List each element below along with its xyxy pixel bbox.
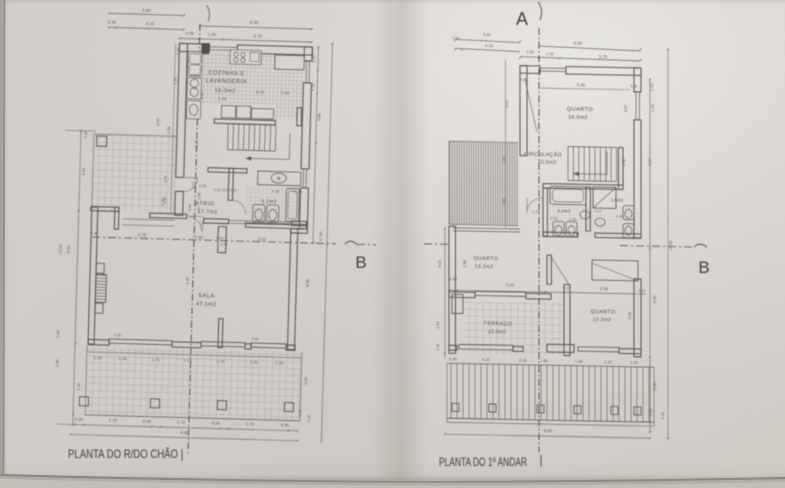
svg-text:1.75: 1.75 xyxy=(217,359,225,364)
svg-text:0.35: 0.35 xyxy=(519,359,527,363)
svg-text:0.55: 0.55 xyxy=(220,243,227,247)
svg-text:6.15: 6.15 xyxy=(200,223,204,230)
svg-text:3.02: 3.02 xyxy=(200,92,204,99)
svg-text:1.57: 1.57 xyxy=(191,181,195,188)
svg-text:3.68: 3.68 xyxy=(502,199,506,206)
svg-text:0.30: 0.30 xyxy=(639,289,646,293)
svg-text:4.03: 4.03 xyxy=(437,260,442,268)
svg-text:0.75: 0.75 xyxy=(256,90,265,95)
svg-text:1.45: 1.45 xyxy=(281,90,290,95)
svg-text:3.80: 3.80 xyxy=(142,8,151,13)
svg-text:3.58: 3.58 xyxy=(167,126,171,133)
svg-text:12.50: 12.50 xyxy=(58,243,63,254)
svg-text:2.20: 2.20 xyxy=(195,140,199,147)
svg-text:3.50: 3.50 xyxy=(483,32,492,37)
svg-text:3.15: 3.15 xyxy=(485,43,493,48)
svg-text:2.40: 2.40 xyxy=(55,329,60,338)
svg-text:5.40: 5.40 xyxy=(185,276,190,285)
svg-text:1.45: 1.45 xyxy=(575,360,583,364)
svg-text:5.50: 5.50 xyxy=(506,282,515,287)
svg-text:1.20: 1.20 xyxy=(94,355,103,360)
svg-text:B: B xyxy=(355,253,366,272)
svg-text:0.30: 0.30 xyxy=(77,383,81,390)
svg-text:3.14: 3.14 xyxy=(81,167,86,176)
svg-text:4.02: 4.02 xyxy=(504,101,509,109)
svg-text:0.90: 0.90 xyxy=(252,337,259,341)
svg-text:8.00: 8.00 xyxy=(156,118,160,125)
svg-text:0.30: 0.30 xyxy=(55,360,59,367)
svg-text:1.05: 1.05 xyxy=(186,31,194,36)
svg-text:0.15: 0.15 xyxy=(197,206,201,213)
svg-text:ATRIO: ATRIO xyxy=(195,201,214,208)
svg-text:2.40: 2.40 xyxy=(653,382,657,389)
svg-text:1.90: 1.90 xyxy=(195,235,203,239)
svg-text:0.30: 0.30 xyxy=(631,84,638,88)
svg-text:0.15: 0.15 xyxy=(551,216,558,220)
svg-text:0.30: 0.30 xyxy=(143,418,152,423)
svg-text:QUARTO: QUARTO xyxy=(567,107,593,114)
svg-text:SALA: SALA xyxy=(198,293,215,299)
svg-text:17.00: 17.00 xyxy=(668,240,673,251)
svg-text:1.80: 1.80 xyxy=(540,359,548,363)
svg-text:2.73: 2.73 xyxy=(109,418,117,423)
svg-text:3.00: 3.00 xyxy=(199,184,207,188)
svg-text:2.88: 2.88 xyxy=(463,260,467,267)
svg-text:0.30: 0.30 xyxy=(75,417,84,422)
svg-text:0.15 0.84 0.15: 0.15 0.84 0.15 xyxy=(214,188,237,193)
svg-text:5.2m2: 5.2m2 xyxy=(261,199,277,205)
svg-text:0.30: 0.30 xyxy=(295,190,302,194)
svg-text:0.10: 0.10 xyxy=(595,209,602,213)
svg-text:3.75: 3.75 xyxy=(599,54,608,59)
svg-text:QUARTO: QUARTO xyxy=(590,309,615,315)
svg-text:1.5m2: 1.5m2 xyxy=(611,197,624,202)
svg-text:0.30: 0.30 xyxy=(661,412,665,419)
svg-text:1.20: 1.20 xyxy=(119,356,128,361)
svg-text:10.5m2: 10.5m2 xyxy=(538,159,556,165)
svg-text:1.20: 1.20 xyxy=(546,52,554,56)
svg-text:1.20: 1.20 xyxy=(604,360,612,364)
svg-text:3.76: 3.76 xyxy=(138,232,147,237)
svg-text:PLANTA DO R/DO CHÃO: PLANTA DO R/DO CHÃO xyxy=(68,447,178,461)
svg-text:0.30: 0.30 xyxy=(84,131,88,138)
svg-text:1.20: 1.20 xyxy=(532,210,539,214)
svg-text:3.35: 3.35 xyxy=(600,286,609,291)
svg-text:3.98: 3.98 xyxy=(316,113,321,121)
svg-text:B: B xyxy=(698,258,709,277)
svg-text:16.2m2: 16.2m2 xyxy=(215,88,236,95)
svg-text:1.20: 1.20 xyxy=(502,157,506,164)
svg-text:1.23: 1.23 xyxy=(312,55,316,62)
svg-text:5.40: 5.40 xyxy=(577,82,586,87)
svg-text:3.75: 3.75 xyxy=(253,33,262,38)
svg-text:0.88: 0.88 xyxy=(197,192,201,199)
svg-text:0.30: 0.30 xyxy=(298,409,302,416)
svg-text:1.20: 1.20 xyxy=(184,358,193,363)
svg-text:2.40: 2.40 xyxy=(304,377,308,384)
svg-text:COZINHA E: COZINHA E xyxy=(208,70,245,77)
svg-text:6.39: 6.39 xyxy=(305,279,310,287)
svg-text:0.30: 0.30 xyxy=(307,415,311,422)
svg-text:0.30: 0.30 xyxy=(281,422,290,427)
svg-text:47.1m2: 47.1m2 xyxy=(196,301,217,308)
svg-text:2.73: 2.73 xyxy=(246,421,254,426)
svg-text:1.20: 1.20 xyxy=(651,104,655,111)
svg-text:8.00: 8.00 xyxy=(67,246,71,253)
svg-text:0.30: 0.30 xyxy=(449,277,456,281)
svg-text:0.35: 0.35 xyxy=(449,357,457,361)
svg-text:1.55: 1.55 xyxy=(616,214,623,218)
svg-text:1.25: 1.25 xyxy=(569,218,576,222)
svg-text:A: A xyxy=(516,9,528,29)
svg-text:2.33: 2.33 xyxy=(622,159,626,166)
svg-text:0.30: 0.30 xyxy=(212,420,221,425)
svg-text:1.20: 1.20 xyxy=(250,359,259,364)
svg-text:1.20: 1.20 xyxy=(114,333,122,337)
svg-text:6.00: 6.00 xyxy=(652,295,657,304)
svg-text:QUARTO: QUARTO xyxy=(473,256,498,262)
svg-text:6.00: 6.00 xyxy=(250,20,259,25)
svg-text:1.23: 1.23 xyxy=(650,83,654,90)
svg-text:0.30: 0.30 xyxy=(521,78,528,82)
svg-text:1.20: 1.20 xyxy=(173,78,177,85)
svg-text:1.20: 1.20 xyxy=(276,360,285,365)
svg-text:3.15: 3.15 xyxy=(146,21,155,26)
svg-text:1.20: 1.20 xyxy=(311,83,315,90)
svg-text:TERRAÇO: TERRAÇO xyxy=(484,321,513,328)
svg-text:0.24: 0.24 xyxy=(217,236,224,240)
svg-text:17.2m2: 17.2m2 xyxy=(593,317,611,323)
svg-text:12.3m2: 12.3m2 xyxy=(488,329,506,335)
svg-text:0.15: 0.15 xyxy=(564,286,571,290)
svg-text:4.2m2: 4.2m2 xyxy=(557,208,571,213)
svg-text:LAVANDERIA: LAVANDERIA xyxy=(206,78,248,85)
svg-text:13.2m2: 13.2m2 xyxy=(475,264,493,270)
svg-text:6.00: 6.00 xyxy=(574,41,583,46)
svg-text:3.07: 3.07 xyxy=(624,105,628,112)
svg-text:2.73: 2.73 xyxy=(177,419,185,424)
svg-text:0.30: 0.30 xyxy=(108,19,117,24)
svg-text:17.00: 17.00 xyxy=(318,231,323,242)
svg-text:1.75: 1.75 xyxy=(152,357,160,362)
svg-text:CIRCULAÇÃO: CIRCULAÇÃO xyxy=(524,151,562,159)
svg-text:1.20: 1.20 xyxy=(630,361,638,365)
svg-text:0.86: 0.86 xyxy=(188,204,192,211)
svg-text:3.15: 3.15 xyxy=(482,358,490,362)
svg-text:1.62: 1.62 xyxy=(436,321,440,328)
svg-text:2.18: 2.18 xyxy=(271,189,279,193)
svg-text:1.20: 1.20 xyxy=(208,32,217,37)
svg-text:16.5m2: 16.5m2 xyxy=(568,115,588,121)
svg-text:3.25: 3.25 xyxy=(258,237,267,242)
svg-text:0.30: 0.30 xyxy=(453,36,460,40)
svg-text:1.23: 1.23 xyxy=(176,48,180,55)
svg-text:9.50: 9.50 xyxy=(544,428,553,433)
svg-text:1.05: 1.05 xyxy=(526,50,534,54)
svg-text:0.35: 0.35 xyxy=(436,344,440,351)
svg-text:0.30: 0.30 xyxy=(649,409,653,416)
svg-text:3.56: 3.56 xyxy=(628,312,632,319)
svg-text:9.80: 9.80 xyxy=(180,430,189,435)
svg-text:PLANTA DO 1º ANDAR: PLANTA DO 1º ANDAR xyxy=(439,455,527,469)
svg-text:3.18: 3.18 xyxy=(218,96,227,101)
svg-text:4.37: 4.37 xyxy=(647,158,652,166)
